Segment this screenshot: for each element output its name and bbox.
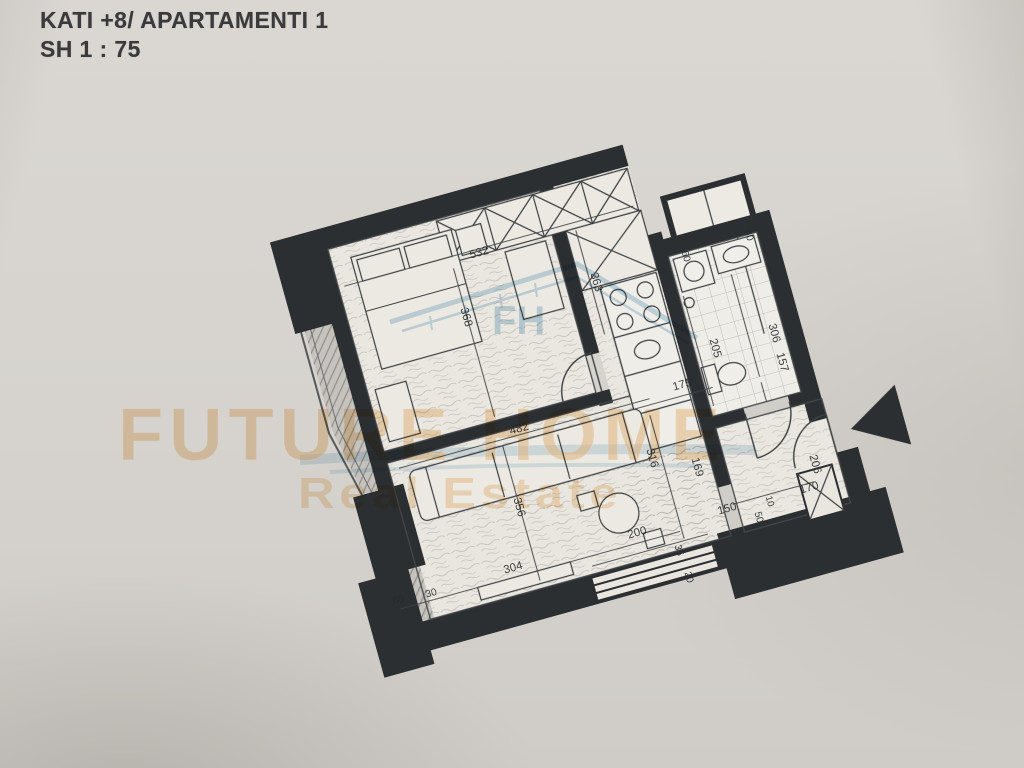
floor-plan-scan: 532 363 368 60 60 205 306 157 175 482 31… <box>0 0 1024 768</box>
dimension-label: 20 <box>682 571 696 585</box>
watermark-brand: FUTURE HOME <box>118 393 726 476</box>
watermark-tagline: Real Estate <box>298 469 622 518</box>
entrance-arrow <box>843 385 912 459</box>
watermark-monogram: FH <box>492 299 545 343</box>
